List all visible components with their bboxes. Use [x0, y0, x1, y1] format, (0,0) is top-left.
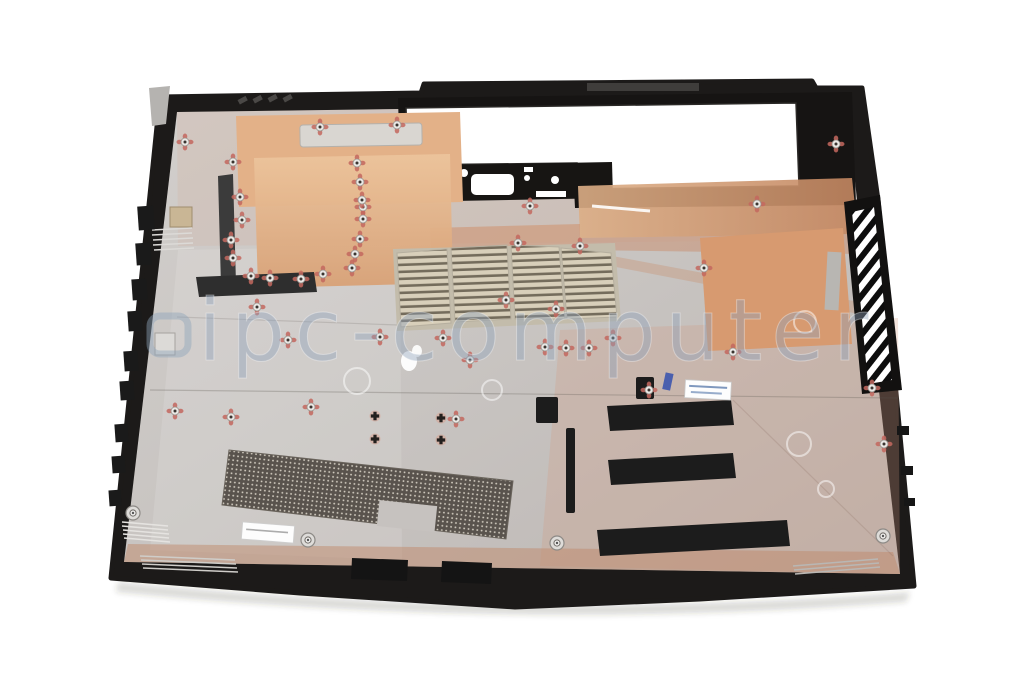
cross-hole: [436, 435, 447, 446]
rim-ridge-tab: [587, 83, 699, 91]
watermark-text: ipc-computer: [198, 281, 878, 381]
laptop-bottom-case-photo: ipc-computer: [0, 0, 1024, 680]
cross-hole: [370, 411, 381, 422]
cross-hole: [370, 434, 381, 445]
cross-hole: [436, 413, 447, 424]
standoff: [550, 536, 564, 550]
part-number-sticker: [685, 380, 732, 400]
standoff: [876, 529, 890, 543]
serial-sticker: [241, 522, 294, 543]
watermark: ipc-computer: [150, 281, 878, 381]
product-photo: ipc-computer: [0, 0, 1024, 680]
connector-block: [170, 207, 192, 227]
standoff: [301, 533, 315, 547]
standoff: [126, 506, 140, 520]
